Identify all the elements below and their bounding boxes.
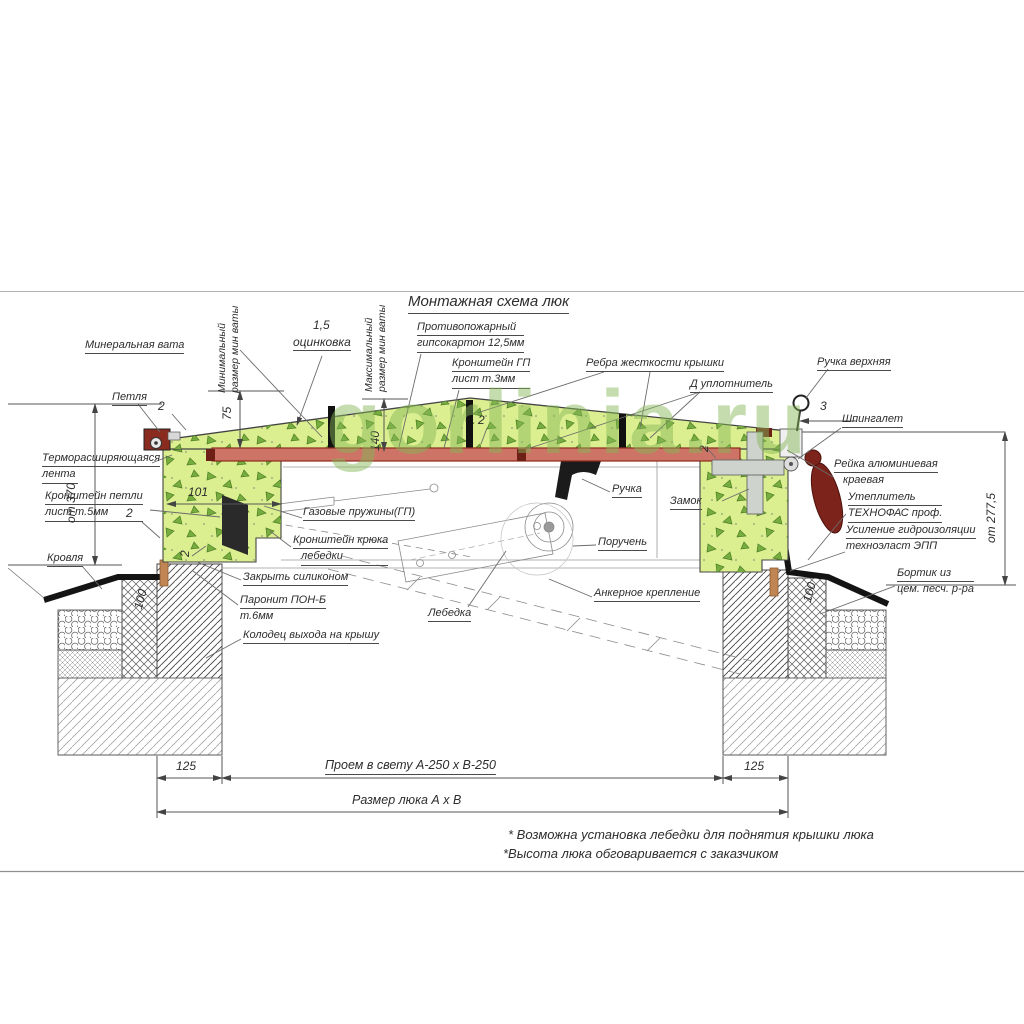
label-top-handle: Ручка верхняя xyxy=(817,355,891,371)
label-gas-springs: Газовые пружины(ГП) xyxy=(303,505,415,521)
dim-wool-min: 75 xyxy=(220,407,234,420)
label-winch: Лебедка xyxy=(428,606,471,622)
label-alu-rail: Рейка алюминиевая краевая xyxy=(834,457,938,488)
drawing-canvas: Монтажная схема люк Минеральная вата Пет… xyxy=(0,0,1024,1024)
watermark: gorlinia.ru xyxy=(326,372,810,475)
dim-height-left: от 370 xyxy=(64,483,78,523)
weld-mark: 2 xyxy=(178,550,192,557)
drawing-title: Монтажная схема люк xyxy=(408,292,569,314)
label-min-wool-size: Минимальный размер мин ваты xyxy=(216,306,242,393)
label-roof: Кровля xyxy=(47,551,83,567)
label-silicone: Закрыть силиконом xyxy=(243,570,348,586)
label-zinc-thickness: 1,5 xyxy=(313,318,330,332)
label-fire-gypsum: Противопожарный гипсокартон 12,5мм xyxy=(417,320,524,353)
label-curb: Бортик из цем. песч. р-ра xyxy=(897,566,974,597)
label-insulation: Утеплитель ТЕХНОФАС проф. xyxy=(848,490,942,523)
note-height-agreement: *Высота люка обговаривается с заказчиком xyxy=(503,846,778,863)
label-zinc: оцинковка xyxy=(293,335,351,351)
label-handrail: Поручень xyxy=(598,535,647,551)
label-handle: Ручка xyxy=(612,482,642,498)
label-hook-bracket: Кронштейн крюка лебедки xyxy=(293,533,388,566)
label-lock: Замок xyxy=(670,494,702,510)
dim-handle-offset: 3 xyxy=(820,399,827,413)
label-thermo-tape: Терморасширяющаяся лента xyxy=(42,451,160,484)
label-hinge: Петля xyxy=(112,390,147,406)
weld-mark: 2 xyxy=(158,399,165,413)
dim-opening: Проем в свету А-250 х В-250 xyxy=(325,757,496,775)
label-shaft: Колодец выхода на крышу xyxy=(243,628,379,644)
weld-mark: 2 xyxy=(126,506,133,520)
label-latch: Шпингалет xyxy=(842,412,903,428)
note-winch-option: * Возможна установка лебедки для подняти… xyxy=(508,827,874,844)
dim-wall-right: 125 xyxy=(744,759,764,773)
dim-wall-left: 125 xyxy=(176,759,196,773)
dim-frame-width: 101 xyxy=(188,485,208,499)
roof-surface-line xyxy=(8,568,44,598)
label-waterproofing: Усиление гидроизоляции техноэласт ЭПП xyxy=(846,523,976,554)
label-ribs: Ребра жесткости крышки xyxy=(586,356,724,372)
dim-height-right: от 277,5 xyxy=(984,493,998,543)
label-anchor: Анкерное крепление xyxy=(594,586,700,602)
label-mineral-wool: Минеральная вата xyxy=(85,338,184,354)
shaft-walls xyxy=(58,564,886,755)
dim-hatch-size: Размер люка А х В xyxy=(352,792,461,808)
label-paronite: Паронит ПОН-Б т.6мм xyxy=(240,593,326,624)
